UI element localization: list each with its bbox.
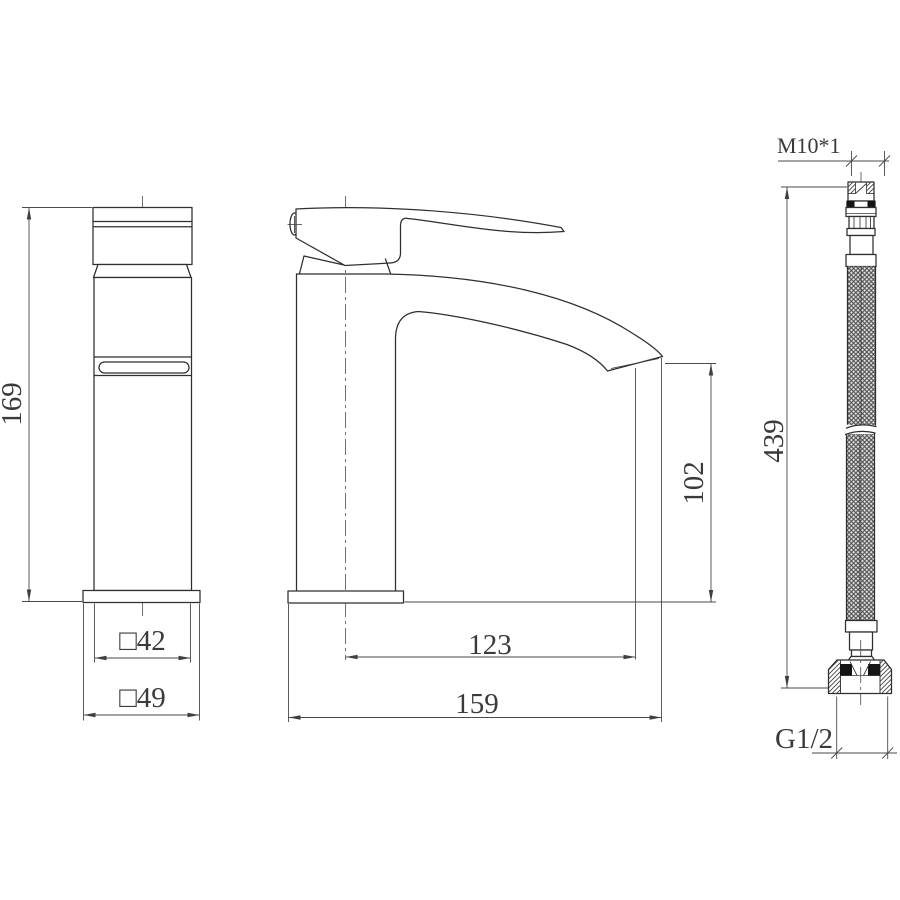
technical-drawing: 169 □42 □49 xyxy=(0,0,900,900)
hose-neck-tube xyxy=(850,236,873,255)
dim-hose-top-thread: M10*1 xyxy=(777,133,890,176)
hose-view: M10*1 439 G1/2 xyxy=(758,133,897,759)
hose-bottom-fitting xyxy=(829,621,892,706)
side-view-outline xyxy=(288,196,663,660)
handle-front xyxy=(93,208,192,265)
aerator-slot xyxy=(99,362,189,373)
dim-front-body-width-label: □42 xyxy=(119,625,166,657)
neck-front xyxy=(94,265,192,278)
front-view: 169 □42 □49 xyxy=(0,196,200,721)
nut-wall-hatch-right xyxy=(880,660,892,694)
hose-seal-right xyxy=(868,202,875,208)
dim-side-overall-length-label: 159 xyxy=(455,688,499,720)
base-plate-front xyxy=(83,591,200,603)
hose-braid xyxy=(846,267,877,622)
nut-wall-hatch-left xyxy=(829,660,841,694)
dim-front-height-label: 169 xyxy=(0,382,28,426)
handle-side xyxy=(296,208,564,266)
dim-side-spout-reach-label: 123 xyxy=(468,629,512,661)
body-front xyxy=(94,278,192,591)
dim-front-height: 169 xyxy=(0,208,92,602)
hose-top-fitting xyxy=(846,172,876,267)
nut-seal-right xyxy=(869,665,880,676)
side-view: 102 123 159 xyxy=(288,196,717,722)
dim-front-base-width: □49 xyxy=(84,604,200,721)
hose-ring-band xyxy=(847,229,875,236)
hose-seal-left xyxy=(847,202,854,208)
hose-lower-ferrule xyxy=(846,621,878,633)
hose-braid-upper xyxy=(848,267,876,426)
hose-lower-ring xyxy=(852,650,872,657)
nut-seal-left xyxy=(841,665,852,676)
nipple-thread-hatch xyxy=(867,182,875,194)
technical-drawing-page: 169 □42 □49 xyxy=(0,0,900,900)
dim-hose-bottom-thread-label: G1/2 xyxy=(775,723,833,755)
hose-collar xyxy=(846,208,876,217)
dim-side-spout-height-label: 102 xyxy=(678,461,710,505)
hose-break-line xyxy=(847,425,877,428)
base-plate-side xyxy=(288,591,404,603)
dim-hose-top-thread-label: M10*1 xyxy=(777,133,841,158)
dim-side-spout-reach: 123 xyxy=(346,358,662,722)
nipple-thread-hatch xyxy=(848,182,856,194)
spout-inner-curve xyxy=(396,312,608,372)
dim-hose-length: 439 xyxy=(758,187,847,688)
dim-side-spout-height: 102 xyxy=(405,364,717,603)
spout-outer-curve xyxy=(387,274,663,357)
dim-hose-length-label: 439 xyxy=(758,419,790,463)
hose-upper-ferrule xyxy=(846,255,876,267)
spout-tip-inner-line xyxy=(611,359,659,369)
front-view-outline xyxy=(83,196,200,616)
dim-side-overall-length: 159 xyxy=(289,604,662,722)
dim-front-base-width-label: □49 xyxy=(119,682,166,714)
dim-hose-bottom-thread: G1/2 xyxy=(775,697,897,760)
hose-braid-lower xyxy=(847,434,875,621)
